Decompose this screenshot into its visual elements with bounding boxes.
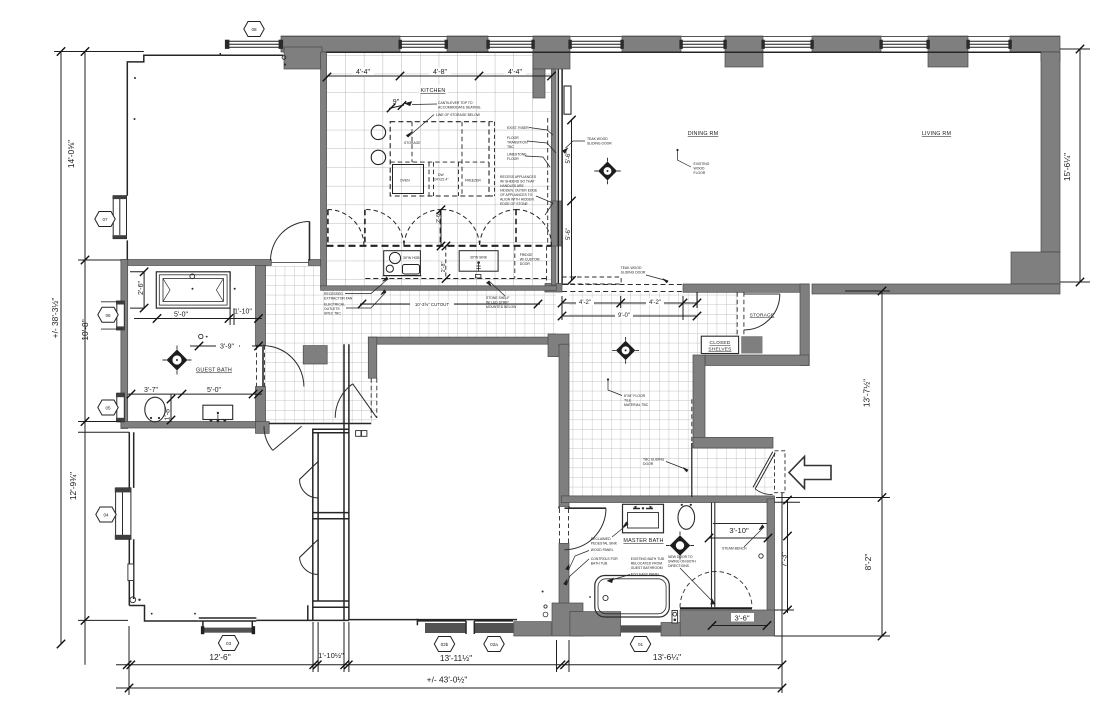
svg-text:3'-7": 3'-7" [144, 387, 158, 394]
svg-text:10'-3⅝" CUTOUT: 10'-3⅝" CUTOUT [415, 302, 450, 307]
svg-text:30"W SINK: 30"W SINK [470, 256, 488, 260]
svg-text:EXIST. RISER: EXIST. RISER [507, 126, 529, 130]
svg-text:14'-0⅝": 14'-0⅝" [66, 140, 76, 168]
svg-text:CANTILEVER TOP TO: CANTILEVER TOP TO [438, 101, 473, 105]
svg-text:GUEST BATH: GUEST BATH [196, 368, 232, 374]
svg-text:8'-2": 8'-2" [863, 554, 873, 571]
svg-text:FRIDGE: FRIDGE [520, 253, 534, 257]
svg-text:STORAGE: STORAGE [404, 141, 421, 145]
svg-text:TEAK WOOD: TEAK WOOD [621, 266, 642, 270]
svg-text:SHELVES: SHELVES [708, 347, 731, 353]
svg-text:FLOOR: FLOOR [507, 157, 519, 161]
svg-text:12'-6": 12'-6" [209, 652, 230, 662]
svg-text:13'-6¼": 13'-6¼" [653, 652, 681, 662]
svg-text:04: 04 [103, 513, 109, 518]
svg-text:PEDESTAL SINK: PEDESTAL SINK [591, 542, 618, 546]
svg-text:HANDLES ARE: HANDLES ARE [500, 184, 524, 188]
svg-text:ACCOMMODATE SEATING.: ACCOMMODATE SEATING. [438, 106, 481, 110]
svg-text:13'-7½": 13'-7½" [862, 379, 872, 407]
svg-text:HIDDEN. OUTER EDGE: HIDDEN. OUTER EDGE [500, 189, 538, 193]
svg-text:4'-2": 4'-2" [649, 300, 661, 306]
svg-text:5'-0": 5'-0" [174, 312, 188, 319]
svg-text:9": 9" [393, 99, 400, 106]
svg-text:ELECTRICAL: ELECTRICAL [324, 303, 345, 307]
svg-text:EDGE OF STONE: EDGE OF STONE [500, 202, 529, 206]
svg-text:7'-3": 7'-3" [780, 552, 789, 567]
svg-text:EXISTING: EXISTING [694, 162, 710, 166]
svg-text:NEW DOOR TO: NEW DOOR TO [668, 555, 693, 559]
svg-text:+/- 38'-3½": +/- 38'-3½" [50, 298, 60, 339]
svg-text:BATH TUB: BATH TUB [591, 562, 608, 566]
svg-text:RELOCATED FROM: RELOCATED FROM [631, 562, 663, 566]
svg-text:ALIGN WITH HIDDEN: ALIGN WITH HIDDEN [500, 198, 534, 202]
svg-text:2'-6": 2'-6" [138, 281, 145, 295]
svg-text:LIVING RM: LIVING RM [922, 131, 952, 137]
svg-text:TRANSITION: TRANSITION [507, 141, 528, 145]
svg-text:WOOD: WOOD [694, 167, 705, 171]
svg-text:4'-2": 4'-2" [579, 300, 591, 306]
svg-text:RECESSED: RECESSED [324, 292, 343, 296]
svg-text:STORAGE: STORAGE [750, 313, 775, 319]
svg-text:2'-8": 2'-8" [441, 262, 447, 273]
svg-text:TEAK WOOD: TEAK WOOD [587, 137, 608, 141]
svg-text:1'-8": 1'-8" [165, 406, 172, 420]
svg-text:STEAM BENCH: STEAM BENCH [722, 547, 747, 551]
svg-text:OUTLETS: OUTLETS [324, 307, 340, 311]
svg-text:07: 07 [102, 217, 108, 222]
svg-text:LINE OF STORAGE BELOW: LINE OF STORAGE BELOW [436, 113, 481, 117]
svg-text:MATERIAL TBC: MATERIAL TBC [624, 403, 649, 407]
svg-text:SLIDING DOOR: SLIDING DOOR [587, 142, 612, 146]
svg-text:3'-6": 3'-6" [734, 614, 749, 623]
svg-text:2'-6": 2'-6" [436, 212, 442, 223]
svg-text:TILE: TILE [624, 399, 632, 403]
svg-text:30"W HOB: 30"W HOB [403, 256, 420, 260]
svg-text:08: 08 [251, 27, 257, 32]
svg-text:MASTER BATH: MASTER BATH [623, 538, 663, 544]
svg-text:06: 06 [105, 313, 111, 318]
svg-text:W/ CUSTOM: W/ CUSTOM [520, 258, 540, 262]
svg-text:5'-6": 5'-6" [566, 152, 572, 164]
svg-text:8"X8" FLOOR: 8"X8" FLOOR [624, 394, 646, 398]
svg-text:W/ SHEEND SO THAT: W/ SHEEND SO THAT [500, 180, 535, 184]
svg-text:9'-0": 9'-0" [618, 313, 630, 319]
svg-text:ECO EASY PANEL: ECO EASY PANEL [631, 573, 660, 577]
svg-text:DOOR: DOOR [520, 262, 531, 266]
svg-text:WOOD PANEL: WOOD PANEL [591, 548, 614, 552]
svg-text:OF APPLIANCES TO: OF APPLIANCES TO [500, 193, 533, 197]
svg-text:24"x22.4": 24"x22.4" [434, 178, 449, 182]
svg-text:TBC SLIDING: TBC SLIDING [643, 458, 665, 462]
svg-text:GUEST BATHROOM: GUEST BATHROOM [631, 566, 663, 570]
svg-text:3'-9": 3'-9" [220, 344, 234, 351]
svg-text:TBC: TBC [507, 145, 514, 149]
svg-text:STONE SHELF: STONE SHELF [486, 296, 510, 300]
svg-text:4'-8": 4'-8" [433, 69, 447, 76]
svg-text:3'-10": 3'-10" [729, 526, 749, 535]
svg-text:DIRECTIONS: DIRECTIONS [668, 564, 690, 568]
svg-text:CONTROLS FOR: CONTROLS FOR [591, 557, 618, 561]
svg-text:OVEN: OVEN [400, 179, 410, 183]
svg-text:5'-0": 5'-0" [207, 387, 221, 394]
svg-text:DINING RM: DINING RM [688, 131, 719, 137]
svg-text:1'-10": 1'-10" [234, 309, 252, 316]
svg-text:5'-6": 5'-6" [566, 228, 572, 240]
svg-text:LIMESTONE: LIMESTONE [507, 153, 527, 157]
svg-text:05: 05 [105, 406, 111, 411]
svg-text:13'-11½": 13'-11½" [440, 653, 472, 663]
svg-text:CLOSED: CLOSED [710, 340, 731, 346]
svg-text:EXTRACTOR FAN: EXTRACTOR FAN [324, 297, 353, 301]
svg-text:SLIDING DOOR: SLIDING DOOR [621, 271, 646, 275]
svg-text:RECESS APPLIANCES: RECESS APPLIANCES [500, 175, 537, 179]
svg-text:15'-6¼": 15'-6¼" [1062, 153, 1072, 181]
svg-text:02b: 02b [441, 642, 449, 647]
svg-text:FREEZER: FREEZER [465, 179, 481, 183]
svg-text:SWING ON BOTH: SWING ON BOTH [668, 560, 696, 564]
svg-text:DW: DW [438, 173, 444, 177]
svg-text:FLOOR: FLOOR [507, 136, 519, 140]
svg-text:RECLAIMED: RECLAIMED [591, 537, 611, 541]
svg-text:FLOOR: FLOOR [694, 171, 706, 175]
svg-text:4'-4": 4'-4" [356, 69, 370, 76]
svg-text:01: 01 [638, 642, 644, 647]
svg-text:MOUNTED BELOW: MOUNTED BELOW [486, 305, 517, 309]
svg-text:02a: 02a [490, 642, 498, 647]
svg-text:03: 03 [226, 641, 232, 646]
svg-text:SPEC TBC: SPEC TBC [324, 312, 341, 316]
svg-text:1'-10½": 1'-10½" [318, 651, 344, 660]
svg-text:W/ LED STRIP: W/ LED STRIP [486, 301, 509, 305]
svg-text:12'-9¾": 12'-9¾" [68, 472, 78, 500]
svg-text:KITCHEN: KITCHEN [420, 88, 445, 94]
svg-text:DOOR: DOOR [643, 462, 654, 466]
svg-text:EXISTING BATH TUB: EXISTING BATH TUB [631, 557, 665, 561]
svg-text:10'-8": 10'-8" [80, 319, 90, 340]
svg-text:4'-4": 4'-4" [508, 69, 522, 76]
svg-text:+/- 43'-0½": +/- 43'-0½" [427, 675, 468, 685]
